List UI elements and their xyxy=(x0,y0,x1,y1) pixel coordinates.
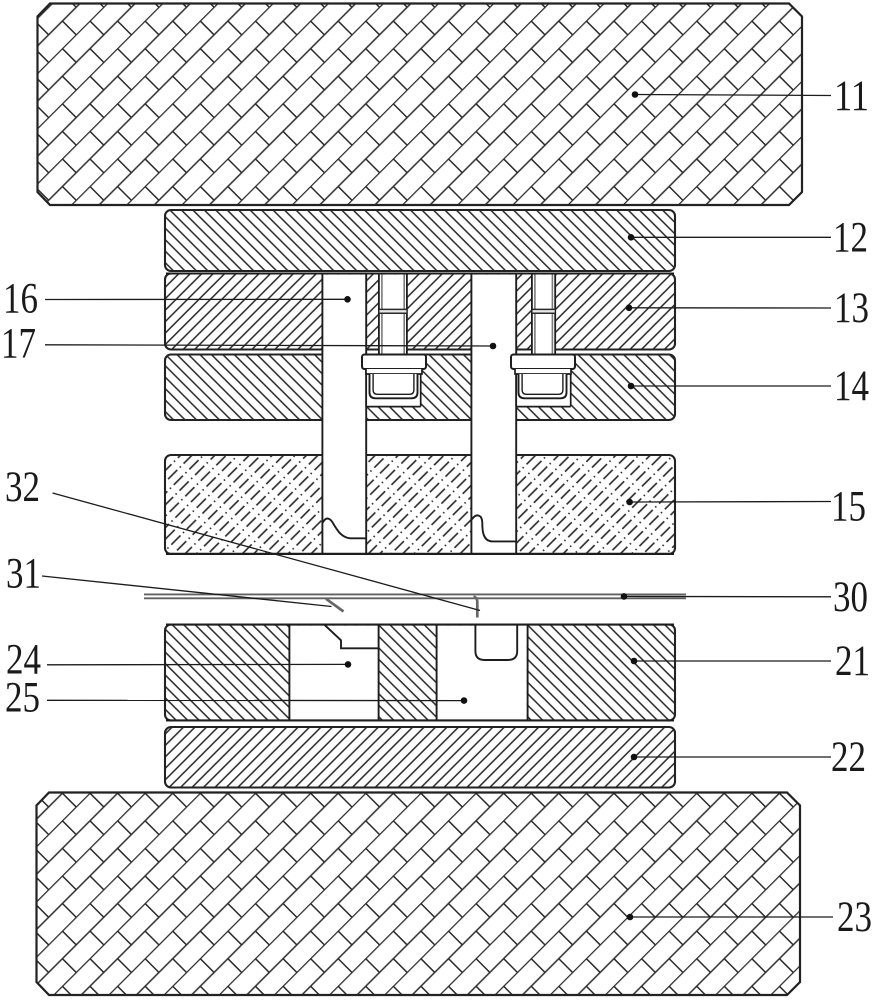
svg-text:13: 13 xyxy=(834,285,869,332)
svg-text:12: 12 xyxy=(833,215,868,262)
svg-text:15: 15 xyxy=(831,484,866,531)
svg-text:31: 31 xyxy=(6,551,41,598)
svg-text:22: 22 xyxy=(831,734,866,781)
svg-text:14: 14 xyxy=(834,363,869,410)
svg-text:16: 16 xyxy=(3,276,38,323)
svg-text:32: 32 xyxy=(5,464,40,511)
svg-text:25: 25 xyxy=(5,675,40,722)
svg-text:11: 11 xyxy=(834,73,869,120)
svg-text:17: 17 xyxy=(1,321,36,368)
svg-text:21: 21 xyxy=(835,638,870,685)
svg-text:23: 23 xyxy=(837,894,872,941)
svg-text:30: 30 xyxy=(833,574,868,621)
